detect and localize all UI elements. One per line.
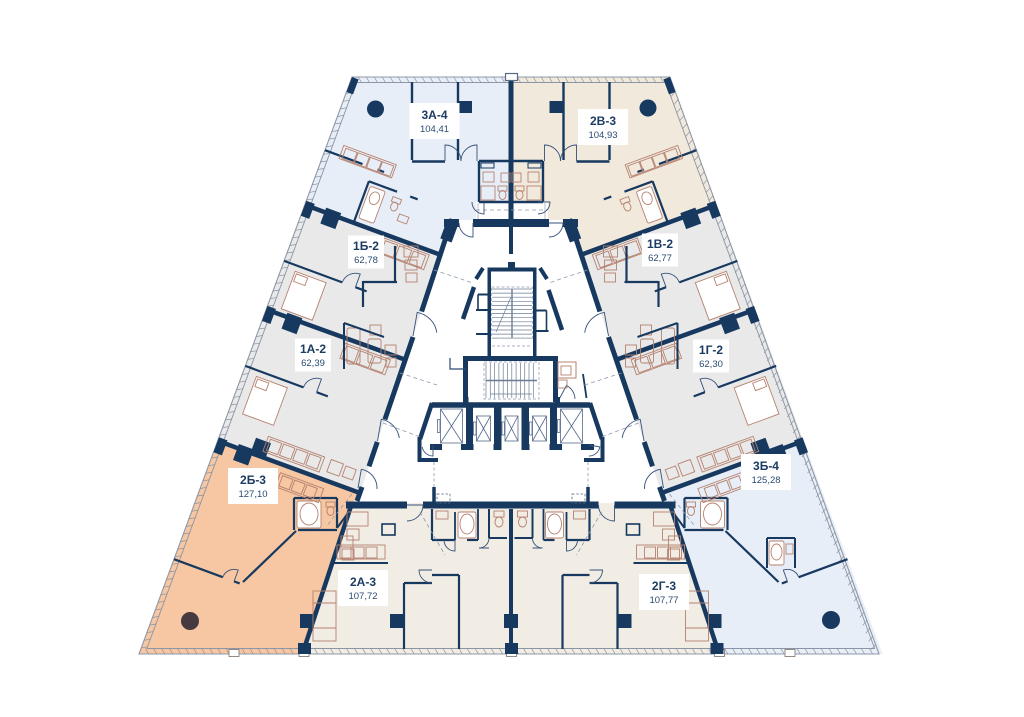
svg-text:107,77: 107,77 (649, 595, 678, 606)
svg-text:62,39: 62,39 (301, 358, 325, 369)
svg-text:2Г-3: 2Г-3 (652, 579, 676, 593)
svg-text:104,93: 104,93 (588, 130, 617, 141)
svg-text:2В-3: 2В-3 (590, 114, 616, 128)
svg-text:1В-2: 1В-2 (647, 237, 673, 251)
svg-text:3Б-4: 3Б-4 (753, 459, 779, 473)
svg-text:2Б-3: 2Б-3 (240, 473, 266, 487)
svg-text:62,78: 62,78 (354, 255, 378, 266)
svg-text:1А-2: 1А-2 (300, 342, 326, 356)
svg-text:107,72: 107,72 (348, 591, 377, 602)
svg-text:127,10: 127,10 (238, 489, 267, 500)
svg-text:125,28: 125,28 (751, 475, 780, 486)
svg-text:104,41: 104,41 (420, 124, 449, 135)
svg-text:1Г-2: 1Г-2 (699, 343, 723, 357)
svg-text:2А-3: 2А-3 (350, 575, 376, 589)
svg-text:62,77: 62,77 (648, 253, 672, 264)
svg-text:3А-4: 3А-4 (421, 108, 447, 122)
svg-text:1Б-2: 1Б-2 (353, 239, 379, 253)
svg-text:62,30: 62,30 (699, 359, 723, 370)
